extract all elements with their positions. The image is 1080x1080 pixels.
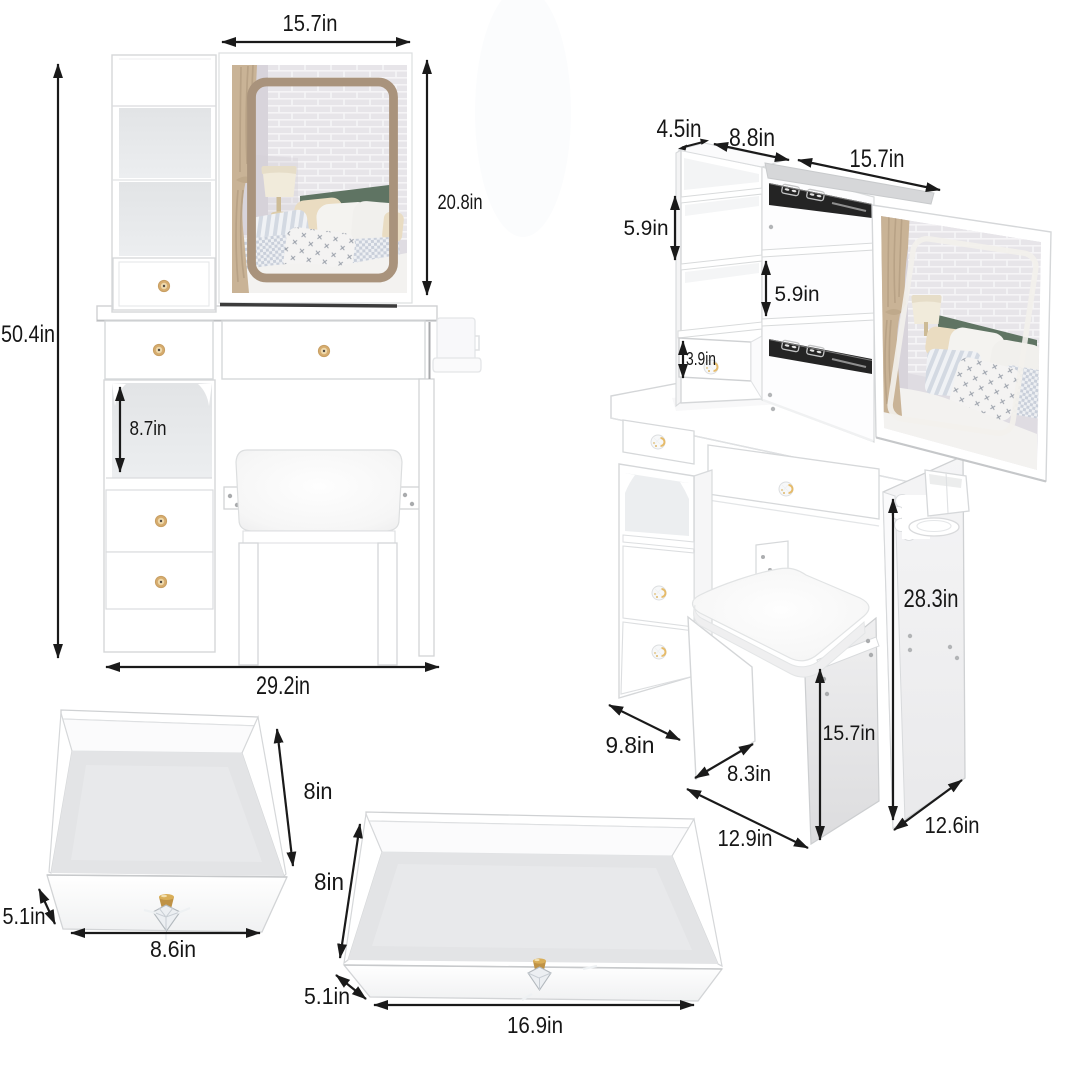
svg-text:8.6in: 8.6in: [150, 936, 196, 962]
svg-text:15.7in: 15.7in: [283, 10, 338, 36]
svg-text:9.8in: 9.8in: [606, 732, 655, 758]
svg-text:4.5in: 4.5in: [657, 115, 702, 143]
svg-text:8.8in: 8.8in: [729, 124, 775, 152]
svg-text:5.9in: 5.9in: [775, 283, 820, 306]
svg-text:15.7in: 15.7in: [850, 145, 905, 173]
svg-text:5.9in: 5.9in: [624, 217, 669, 240]
svg-text:28.3in: 28.3in: [904, 585, 959, 613]
svg-text:16.9in: 16.9in: [507, 1012, 563, 1038]
svg-text:50.4in: 50.4in: [1, 321, 55, 348]
svg-text:3.9in: 3.9in: [686, 349, 716, 369]
svg-text:15.7in: 15.7in: [823, 722, 876, 745]
svg-text:8in: 8in: [304, 778, 333, 804]
svg-text:20.8in: 20.8in: [438, 191, 483, 214]
svg-text:8.3in: 8.3in: [727, 761, 771, 786]
svg-text:5.1in: 5.1in: [3, 903, 46, 929]
svg-text:12.6in: 12.6in: [925, 812, 980, 838]
svg-text:8.7in: 8.7in: [130, 418, 167, 440]
svg-text:5.1in: 5.1in: [304, 983, 350, 1009]
svg-text:8in: 8in: [314, 869, 344, 896]
svg-text:29.2in: 29.2in: [256, 672, 310, 700]
svg-text:12.9in: 12.9in: [718, 825, 773, 851]
